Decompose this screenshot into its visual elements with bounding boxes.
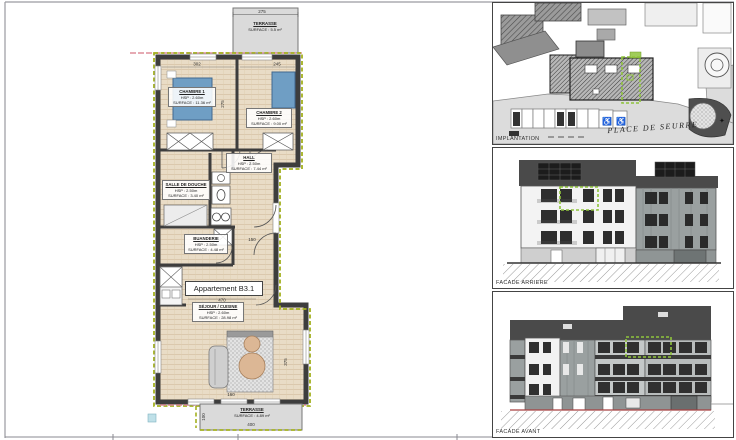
star-icon: ✦ bbox=[719, 117, 725, 125]
terrace-surface: SURFACE : 4.89 m² bbox=[234, 413, 270, 418]
room-name: SÉJOUR / CUISINE bbox=[194, 304, 242, 310]
room-surface: SURFACE : 3.40 m² bbox=[164, 193, 208, 198]
project-building bbox=[550, 41, 653, 100]
car bbox=[568, 112, 575, 126]
drawing-sheet: 275 302 245 275 150 470 375 160 400 100 … bbox=[0, 0, 736, 440]
terrace-top-label: TERRASSE SURFACE : 5.5 m² bbox=[236, 21, 294, 32]
neighbour-buildings bbox=[493, 3, 731, 65]
panel-facade-avant: FACADE AVANT bbox=[492, 291, 734, 438]
room-name: SALLE DE DOUCHE bbox=[164, 182, 208, 188]
svg-text:375: 375 bbox=[283, 358, 288, 366]
roof-vent bbox=[563, 324, 572, 329]
car bbox=[557, 112, 564, 126]
panel-implantation: ✦ ♿ ♿ PLACE DE SEURRE IMP bbox=[492, 2, 734, 145]
svg-text:302: 302 bbox=[193, 62, 201, 67]
apartment-title: Appartement B3.1 bbox=[185, 281, 263, 296]
room-surface: SURFACE : 9.00 m² bbox=[248, 121, 290, 126]
terrace-bottom-label: TERRASSE SURFACE : 4.89 m² bbox=[224, 407, 280, 418]
kitchen-counter bbox=[160, 267, 182, 305]
room-label-chambre1: CHAMBRE 1 HSP : 2.60m SURFACE : 11.36 m² bbox=[168, 87, 216, 107]
svg-text:100: 100 bbox=[201, 413, 206, 421]
car bbox=[513, 112, 520, 126]
room-label-chambre2: CHAMBRE 2 HSP : 2.60m SURFACE : 9.00 m² bbox=[246, 108, 292, 128]
terrace-surface: SURFACE : 5.5 m² bbox=[248, 27, 282, 32]
room-surface: SURFACE : 7.44 m² bbox=[228, 166, 270, 171]
room-label-salle-de-douche: SALLE DE DOUCHE HSP : 2.50m SURFACE : 3.… bbox=[162, 180, 210, 200]
svg-text:275: 275 bbox=[220, 100, 225, 108]
svg-text:400: 400 bbox=[247, 422, 255, 427]
room-surface: SURFACE : 4.48 m² bbox=[186, 247, 226, 252]
rear-elevation bbox=[493, 148, 733, 288]
roof-vent bbox=[658, 312, 668, 317]
front-elevation bbox=[493, 292, 733, 437]
panel-label-facade-avant: FACADE AVANT bbox=[496, 429, 540, 435]
panel-facade-arriere: FACADE ARRIERE bbox=[492, 147, 734, 289]
svg-text:160: 160 bbox=[227, 392, 235, 397]
room-label-buanderie: BUANDERIE HSP : 2.50m SURFACE : 4.48 m² bbox=[184, 234, 228, 254]
panel-label-facade-arriere: FACADE ARRIERE bbox=[496, 280, 548, 286]
svg-text:245: 245 bbox=[273, 62, 281, 67]
svg-text:275: 275 bbox=[258, 9, 266, 14]
room-surface: SURFACE : 11.36 m² bbox=[170, 100, 214, 105]
ground-floor bbox=[525, 396, 711, 410]
bed-chambre2 bbox=[272, 72, 295, 108]
panel-label-implantation: IMPLANTATION bbox=[496, 136, 539, 142]
site-plan: ✦ ♿ ♿ PLACE DE SEURRE bbox=[493, 3, 733, 144]
room-label-sejour-cuisine: SÉJOUR / CUISINE HSP : 2.60m SURFACE : 2… bbox=[192, 302, 244, 322]
roof bbox=[510, 306, 711, 340]
room-label-hall: HALL HSP : 2.50m SURFACE : 7.44 m² bbox=[226, 153, 272, 173]
roof bbox=[519, 160, 718, 188]
ground-floor bbox=[521, 248, 716, 263]
wheelchair-icon: ♿ bbox=[602, 116, 612, 126]
room-surface: SURFACE : 28.98 m² bbox=[194, 315, 242, 320]
svg-text:150: 150 bbox=[248, 237, 256, 242]
